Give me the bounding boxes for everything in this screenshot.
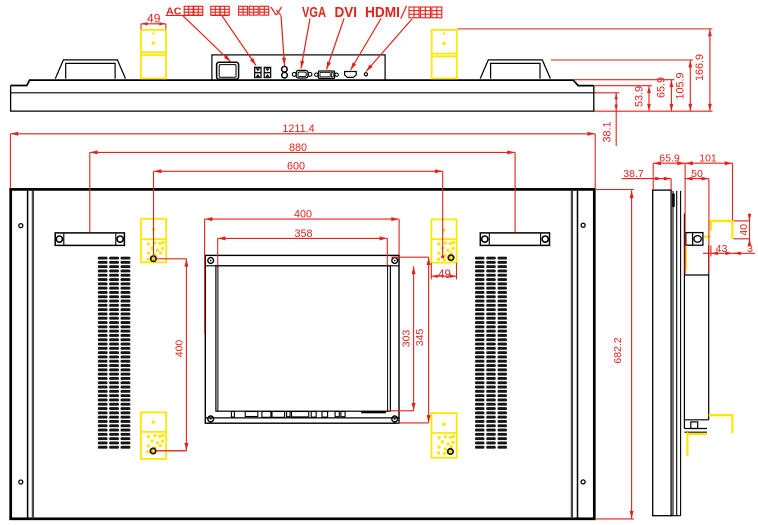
svg-text:53.9: 53.9 [634,86,646,107]
svg-text:40: 40 [738,224,750,236]
svg-text:303: 303 [400,330,412,348]
svg-text:HDMI: HDMI [365,5,400,21]
svg-text:101: 101 [699,153,717,165]
svg-text:166.9: 166.9 [694,54,706,81]
svg-text:DVI: DVI [335,5,358,21]
svg-text:43: 43 [716,243,728,255]
svg-text:105.9: 105.9 [675,72,687,99]
svg-text:38.1: 38.1 [602,121,614,142]
svg-text:600: 600 [287,161,305,173]
svg-text:65.9: 65.9 [659,153,680,165]
svg-text:358: 358 [294,228,312,240]
svg-text:38.7: 38.7 [623,168,644,180]
svg-text:1211.4: 1211.4 [282,123,314,135]
svg-text:400: 400 [294,208,312,220]
svg-text:49: 49 [147,11,161,25]
svg-text:49: 49 [438,269,451,281]
svg-text:3: 3 [747,243,753,255]
svg-text:65.9: 65.9 [656,77,668,98]
svg-text:VGA: VGA [302,5,326,21]
svg-text:682.2: 682.2 [612,337,624,363]
svg-text:400: 400 [173,340,185,358]
svg-text:50: 50 [691,168,703,180]
svg-text:880: 880 [289,142,307,154]
svg-text:345: 345 [414,329,426,347]
